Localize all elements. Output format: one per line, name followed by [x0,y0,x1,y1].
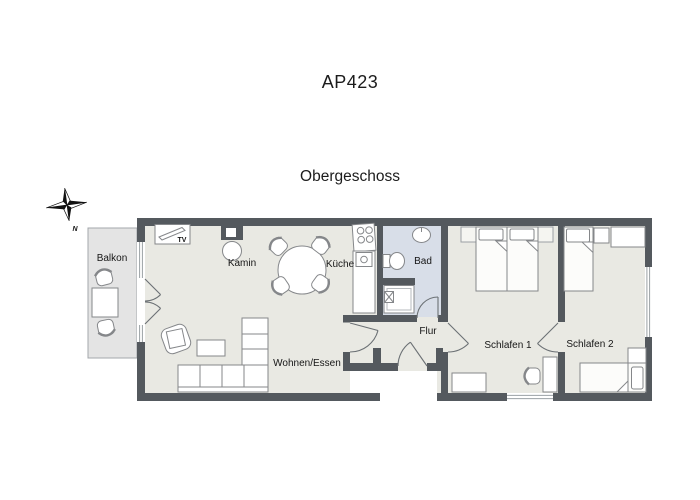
compass-rose [44,185,89,223]
bad-label: Bad [414,256,432,267]
tv-unit: TV [155,225,190,245]
window-schlafen2-east [645,267,652,337]
nightstand [628,348,646,363]
window-balcony-lower [137,325,145,342]
kamin-label: Kamin [228,258,256,269]
pillow [567,229,590,242]
shower [384,286,414,314]
wohnen-essen-label: Wohnen/Essen [273,358,341,369]
pillow [479,229,503,240]
kueche-label: Küche [326,259,355,270]
flur-label: Flur [419,326,437,337]
toilet [383,253,405,270]
balkon-label: Balkon [97,253,128,264]
chimney-inset [226,228,236,237]
window-schlafen1-south [507,393,553,401]
window-balcony-upper [137,242,145,278]
kitchen-sink [356,253,372,267]
schlafen2-label: Schlafen 2 [566,339,614,350]
floorplan-page: AP423 Obergeschoss N Balko [0,0,700,500]
room-balkon: Balkon [88,228,137,358]
floor-label: Obergeschoss [0,168,700,186]
wardrobe [611,227,645,247]
desk [543,357,557,392]
nightstand [594,228,609,243]
balcony-table [92,288,118,317]
schlafen1-label: Schlafen 1 [484,340,532,351]
pillow [510,229,534,240]
tv-label: TV [178,237,187,244]
stove [352,223,376,251]
pillow [632,367,644,389]
plan-title: AP423 [0,72,700,93]
bath-sink [413,227,431,243]
compass-north-label: N [72,226,78,233]
dresser [452,373,486,392]
coffee-table [197,340,225,356]
desk-chair [525,368,541,385]
